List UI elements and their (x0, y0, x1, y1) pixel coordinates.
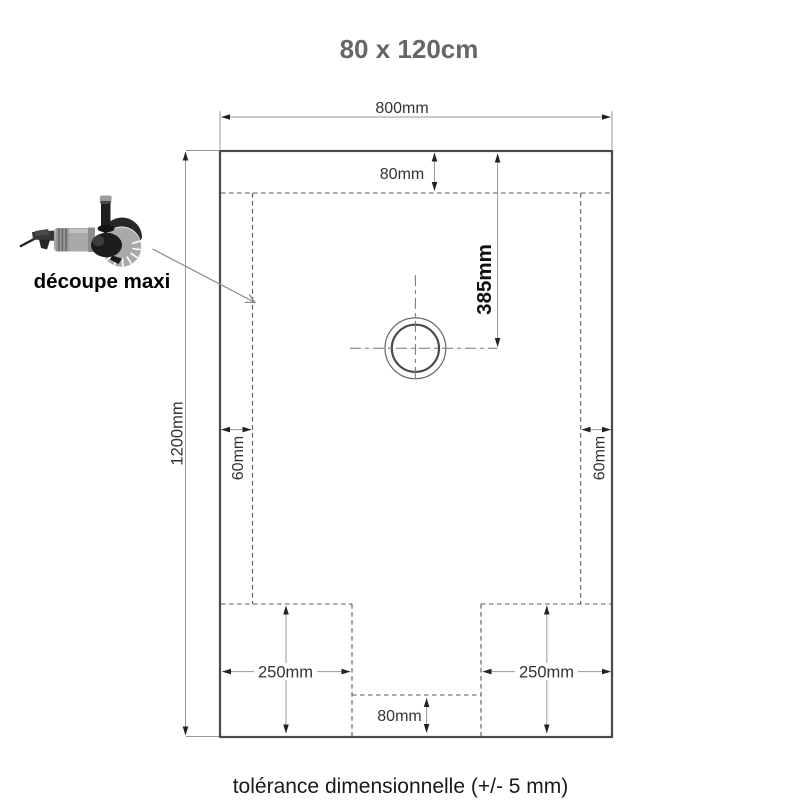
svg-text:80mm: 80mm (380, 166, 424, 183)
svg-text:60mm: 60mm (592, 436, 609, 480)
svg-text:60mm: 60mm (230, 436, 247, 480)
svg-text:découpe maxi: découpe maxi (34, 270, 171, 293)
svg-text:80mm: 80mm (377, 708, 421, 725)
svg-text:1200mm: 1200mm (169, 401, 187, 465)
svg-text:80 x 120cm: 80 x 120cm (340, 34, 479, 64)
svg-text:800mm: 800mm (375, 100, 428, 117)
svg-text:250mm: 250mm (258, 664, 313, 682)
svg-text:250mm: 250mm (519, 664, 574, 682)
svg-text:tolérance dimensionnelle (+/-: tolérance dimensionnelle (+/- 5 mm) (233, 775, 569, 798)
svg-text:385mm: 385mm (473, 244, 496, 315)
